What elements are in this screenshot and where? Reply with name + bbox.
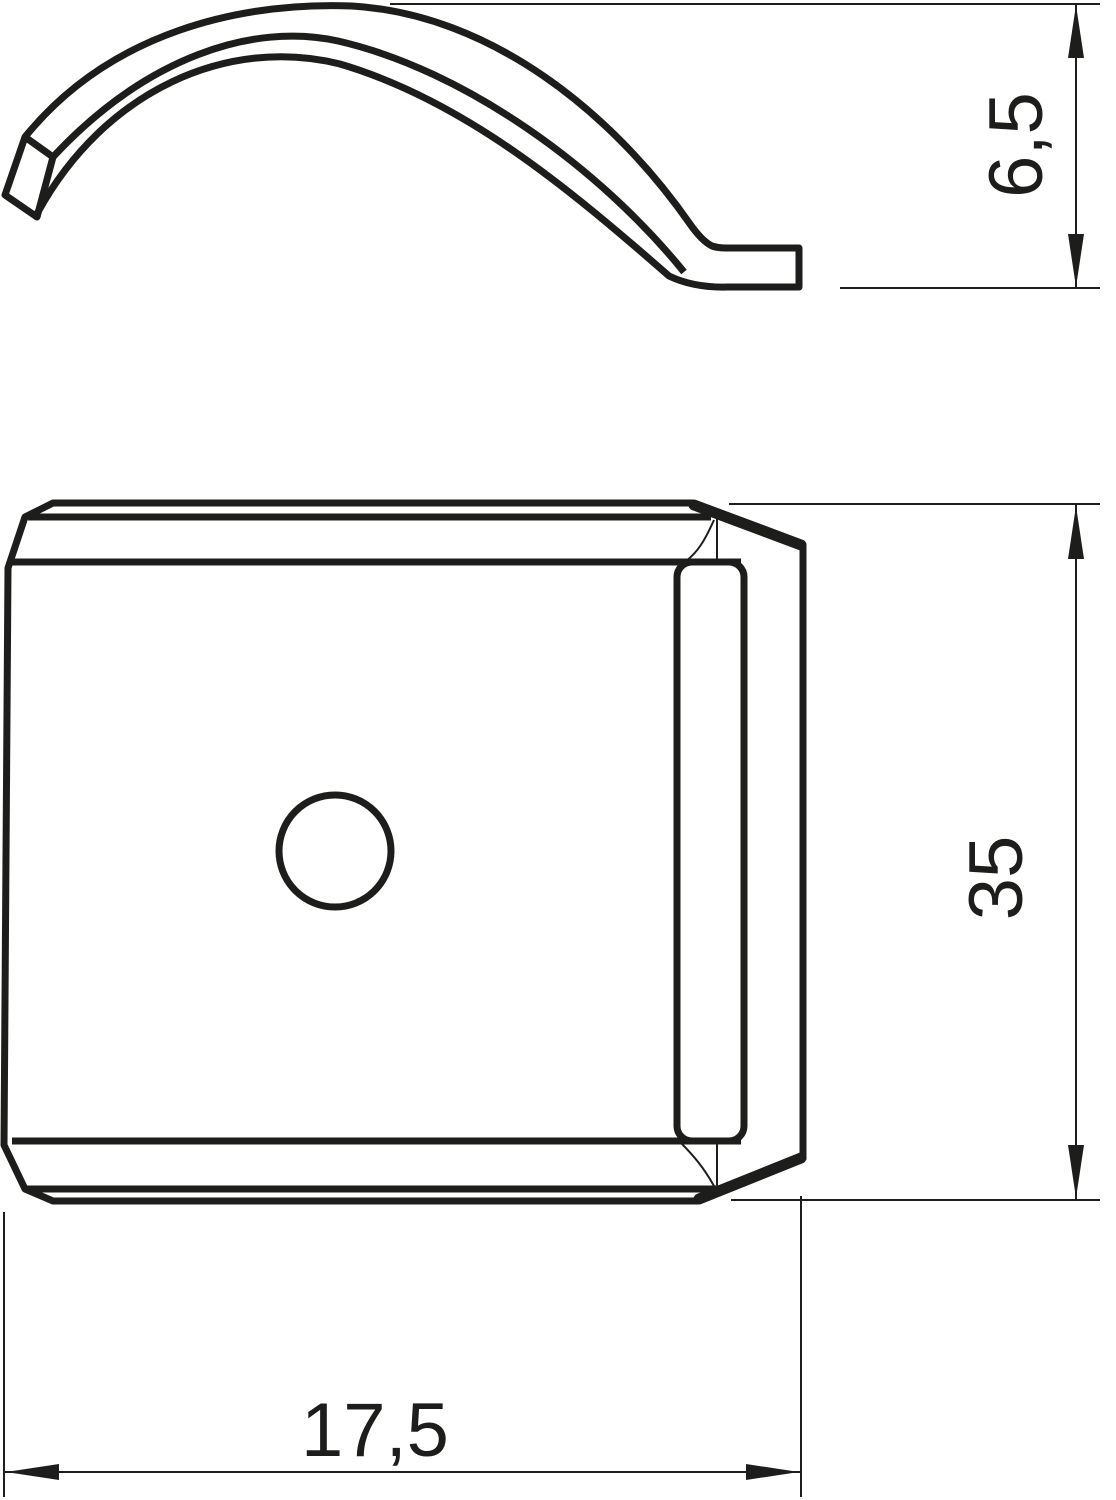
arrowhead-down [1068,234,1084,287]
clip-profile-outline [5,6,799,287]
plate-top-right-chamfer [694,505,801,545]
top-right-bend-curve [686,520,714,561]
plate-bottom-right-chamfer [699,1158,801,1199]
arrowhead-up [1068,5,1084,58]
arrowhead-up [1068,506,1084,559]
dimension-plate-width: 17,5 [4,1196,801,1497]
dimension-plate-length: 35 [729,504,1100,1200]
technical-drawing-canvas: 6,5 35 17,5 [0,0,1116,1500]
clip-end-face [25,137,53,217]
bottom-right-bend-curve [680,1142,714,1186]
dimension-label-clip-height: 6,5 [974,92,1059,198]
dimension-label-plate-length: 35 [954,836,1039,921]
side-tab-band [677,562,744,1141]
front-view [4,503,803,1201]
side-profile-view [5,6,799,287]
arrowhead-right [746,1464,799,1480]
drawing-sheet: 6,5 35 17,5 [0,0,1116,1500]
plate-outline [4,503,803,1201]
arrowhead-down [1068,1145,1084,1198]
arrowhead-left [6,1464,59,1480]
center-hole [279,795,391,907]
dimension-label-plate-width: 17,5 [301,1388,449,1473]
